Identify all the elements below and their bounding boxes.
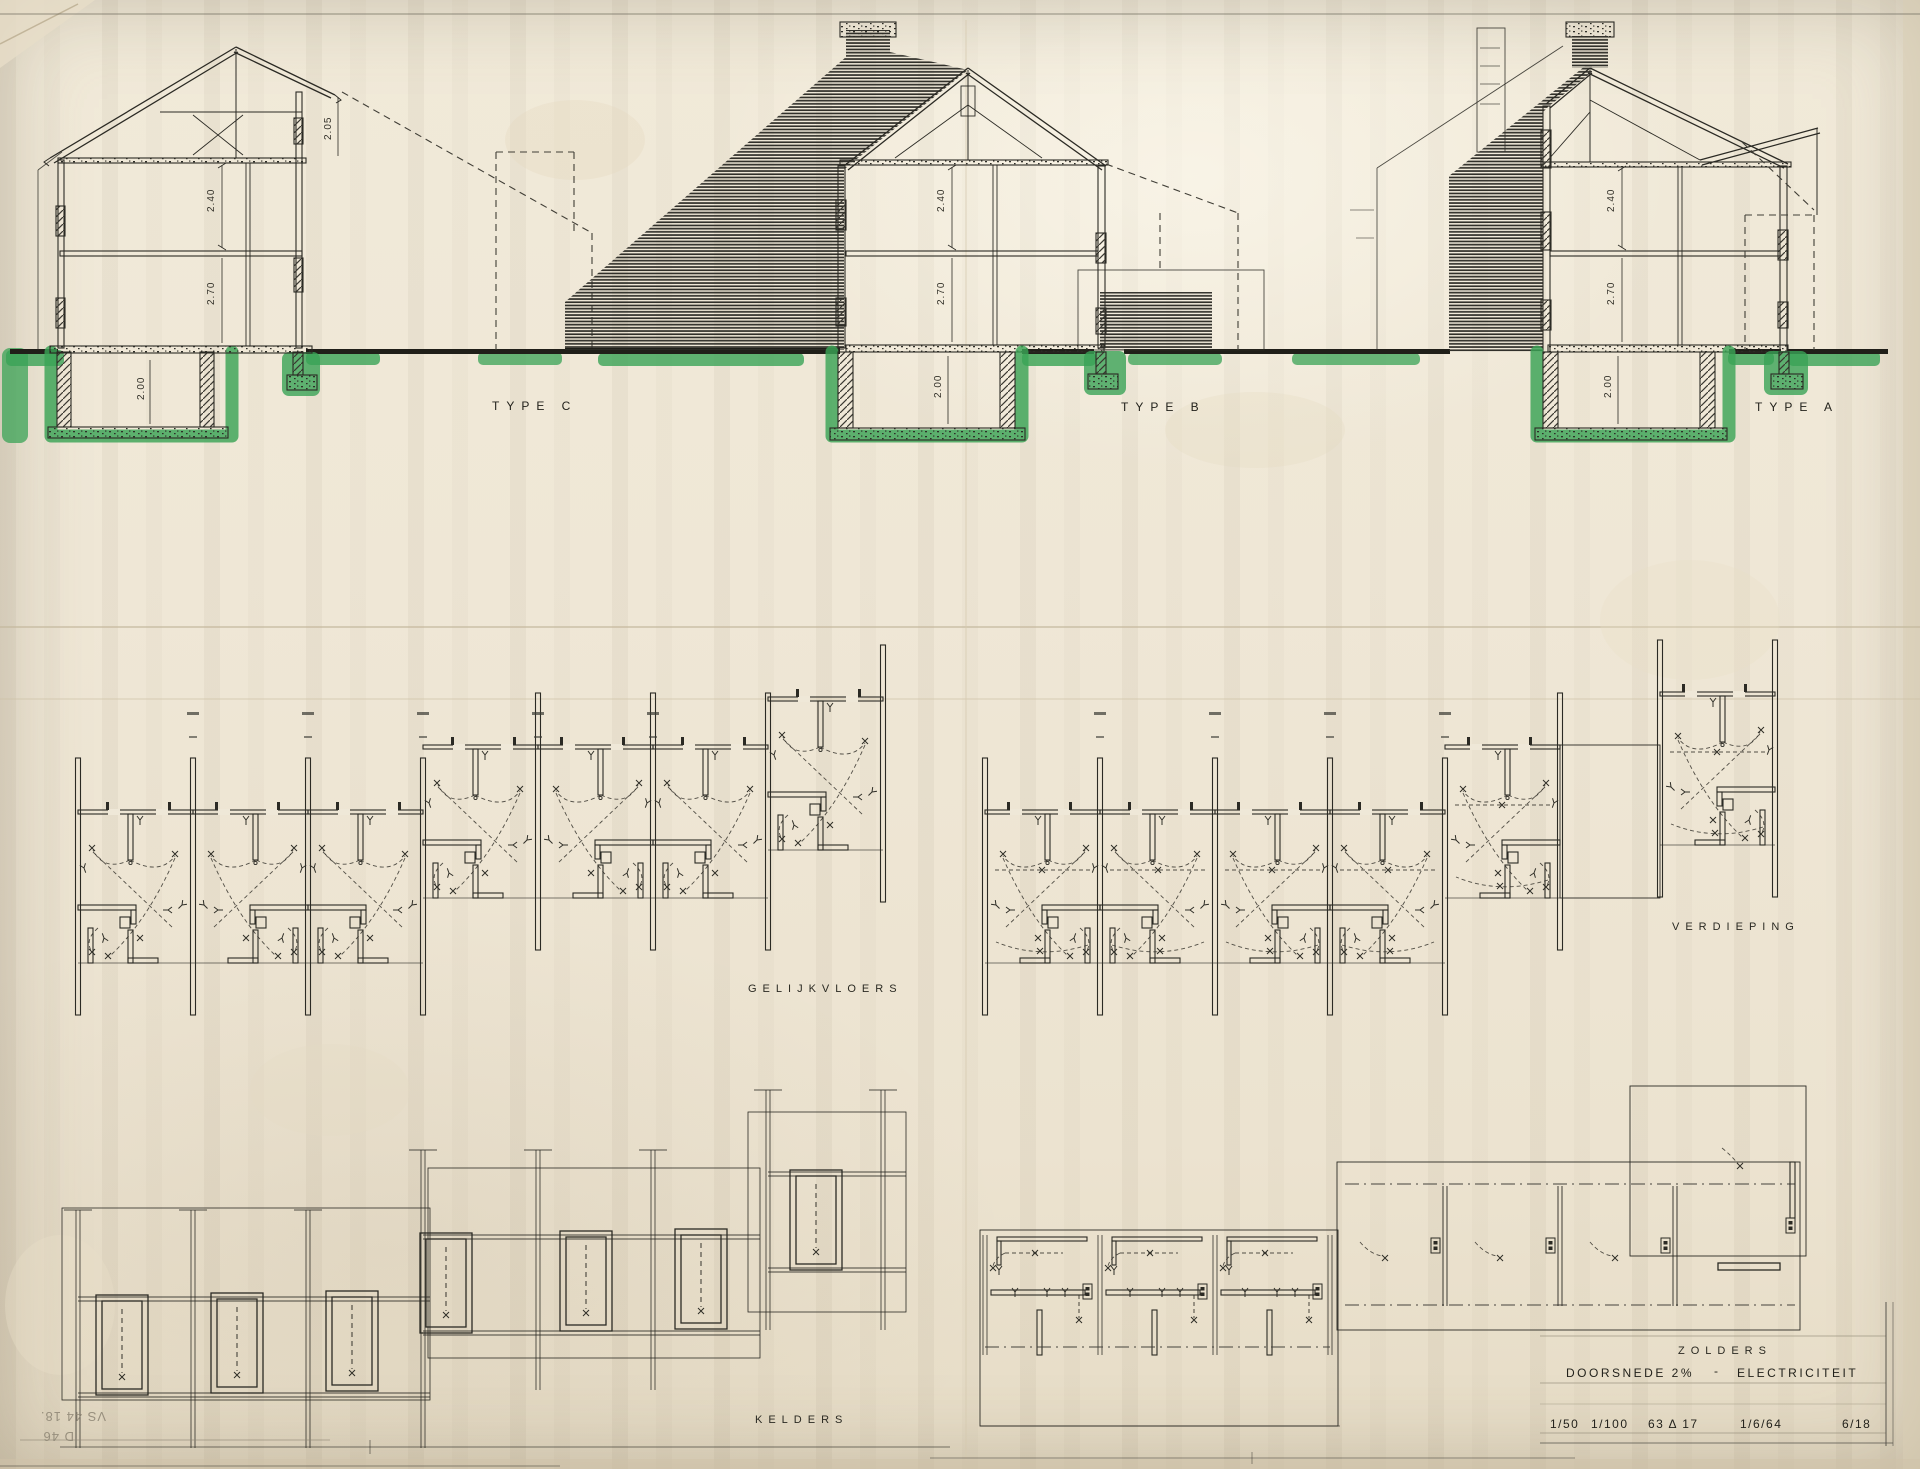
plan-unit xyxy=(768,689,883,850)
attics-group xyxy=(930,1086,1806,1464)
party-wall xyxy=(421,758,426,1015)
paper-artifacts xyxy=(0,0,1920,1469)
plan-unit xyxy=(78,802,193,963)
party-wall xyxy=(1098,758,1103,1015)
party-wall xyxy=(1328,758,1333,1015)
party-wall xyxy=(983,758,988,1015)
label-cellars: KELDERS xyxy=(755,1414,848,1426)
dim-c-ground: 2.70 xyxy=(206,282,217,305)
dim-b-ground: 2.70 xyxy=(936,282,947,305)
label-type-b: TYPE B xyxy=(1121,400,1206,414)
dim-a-cellar: 2.00 xyxy=(1603,375,1614,398)
plan-unit xyxy=(1100,802,1215,963)
plan-unit xyxy=(308,802,423,963)
corner-note-line2: D 46 xyxy=(43,1429,74,1444)
plan-unit xyxy=(538,737,653,898)
party-wall xyxy=(766,693,771,950)
scale-small: 1/50 xyxy=(1550,1417,1579,1431)
plan-unit xyxy=(423,737,538,898)
title-drawing: DOORSNEDE 2% xyxy=(1566,1366,1694,1380)
plan-unit xyxy=(1330,802,1445,963)
cellar-room xyxy=(790,1170,842,1270)
section-type-a xyxy=(1350,22,1820,440)
party-wall xyxy=(1443,758,1448,1015)
dim-c-upper: 2.40 xyxy=(206,189,217,212)
plan-unit xyxy=(193,802,308,963)
label-ground-floor: GELIJKVLOERS xyxy=(748,983,903,995)
dim-b-upper: 2.40 xyxy=(936,189,947,212)
party-wall xyxy=(881,645,886,902)
dim-a-ground: 2.70 xyxy=(1606,282,1617,305)
party-wall xyxy=(191,758,196,1015)
dark-gable-b xyxy=(565,30,968,350)
party-wall xyxy=(306,758,311,1015)
plan-connector xyxy=(1560,745,1660,898)
label-type-c: TYPE C xyxy=(492,399,577,413)
plan-unit xyxy=(985,802,1100,963)
title-subject: ELECTRICITEIT xyxy=(1737,1366,1858,1380)
chimney-cap-b xyxy=(840,22,896,37)
cellar-room xyxy=(211,1293,263,1393)
cellar-room xyxy=(326,1291,378,1391)
sheet-number: 6/18 xyxy=(1842,1417,1871,1431)
plan-unit xyxy=(1445,737,1560,898)
party-wall xyxy=(76,758,81,1015)
title-block: DOORSNEDE 2% - ELECTRICITEIT 1/50 1/100 … xyxy=(1540,1302,1893,1446)
label-attics: ZOLDERS xyxy=(1678,1345,1772,1357)
floor-plans xyxy=(0,640,1806,1466)
plan-unit xyxy=(653,737,768,898)
drawing-canvas: 2.40 2.70 2.05 2.00 xyxy=(0,0,1920,1469)
dark-gable-a xyxy=(1449,66,1592,352)
party-wall xyxy=(536,693,541,950)
party-wall xyxy=(651,693,656,950)
party-wall xyxy=(1773,640,1778,897)
dim-a-upper: 2.40 xyxy=(1606,189,1617,212)
drawing-date: 1/6/64 xyxy=(1740,1417,1782,1431)
label-type-a: TYPE A xyxy=(1755,400,1839,414)
dim-b-cellar: 2.00 xyxy=(933,375,944,398)
cellar-room xyxy=(560,1231,612,1331)
blueprint-sheet: 2.40 2.70 2.05 2.00 xyxy=(0,0,1920,1469)
section-type-c xyxy=(38,47,341,438)
dim-c-cellar: 2.00 xyxy=(136,377,147,400)
grid-ticks xyxy=(187,712,1451,738)
plan-unit xyxy=(1215,802,1330,963)
plan-unit xyxy=(1660,684,1775,845)
cellars-group xyxy=(0,1090,950,1466)
party-wall xyxy=(1213,758,1218,1015)
chimney-cap-a xyxy=(1566,22,1614,37)
corner-note-line1: VS 44 18. xyxy=(40,1409,106,1424)
project-code: 63 Δ 17 xyxy=(1648,1417,1699,1431)
dim-c-attic: 2.05 xyxy=(323,117,334,140)
section-type-b xyxy=(565,22,1126,440)
title-separator: - xyxy=(1714,1364,1721,1378)
corner-note: VS 44 18. D 46 xyxy=(20,1409,330,1444)
chimney-a xyxy=(1572,36,1608,68)
cellar-room xyxy=(675,1229,727,1329)
label-upper-floor: VERDIEPING xyxy=(1672,921,1800,933)
scale-large: 1/100 xyxy=(1591,1417,1629,1431)
